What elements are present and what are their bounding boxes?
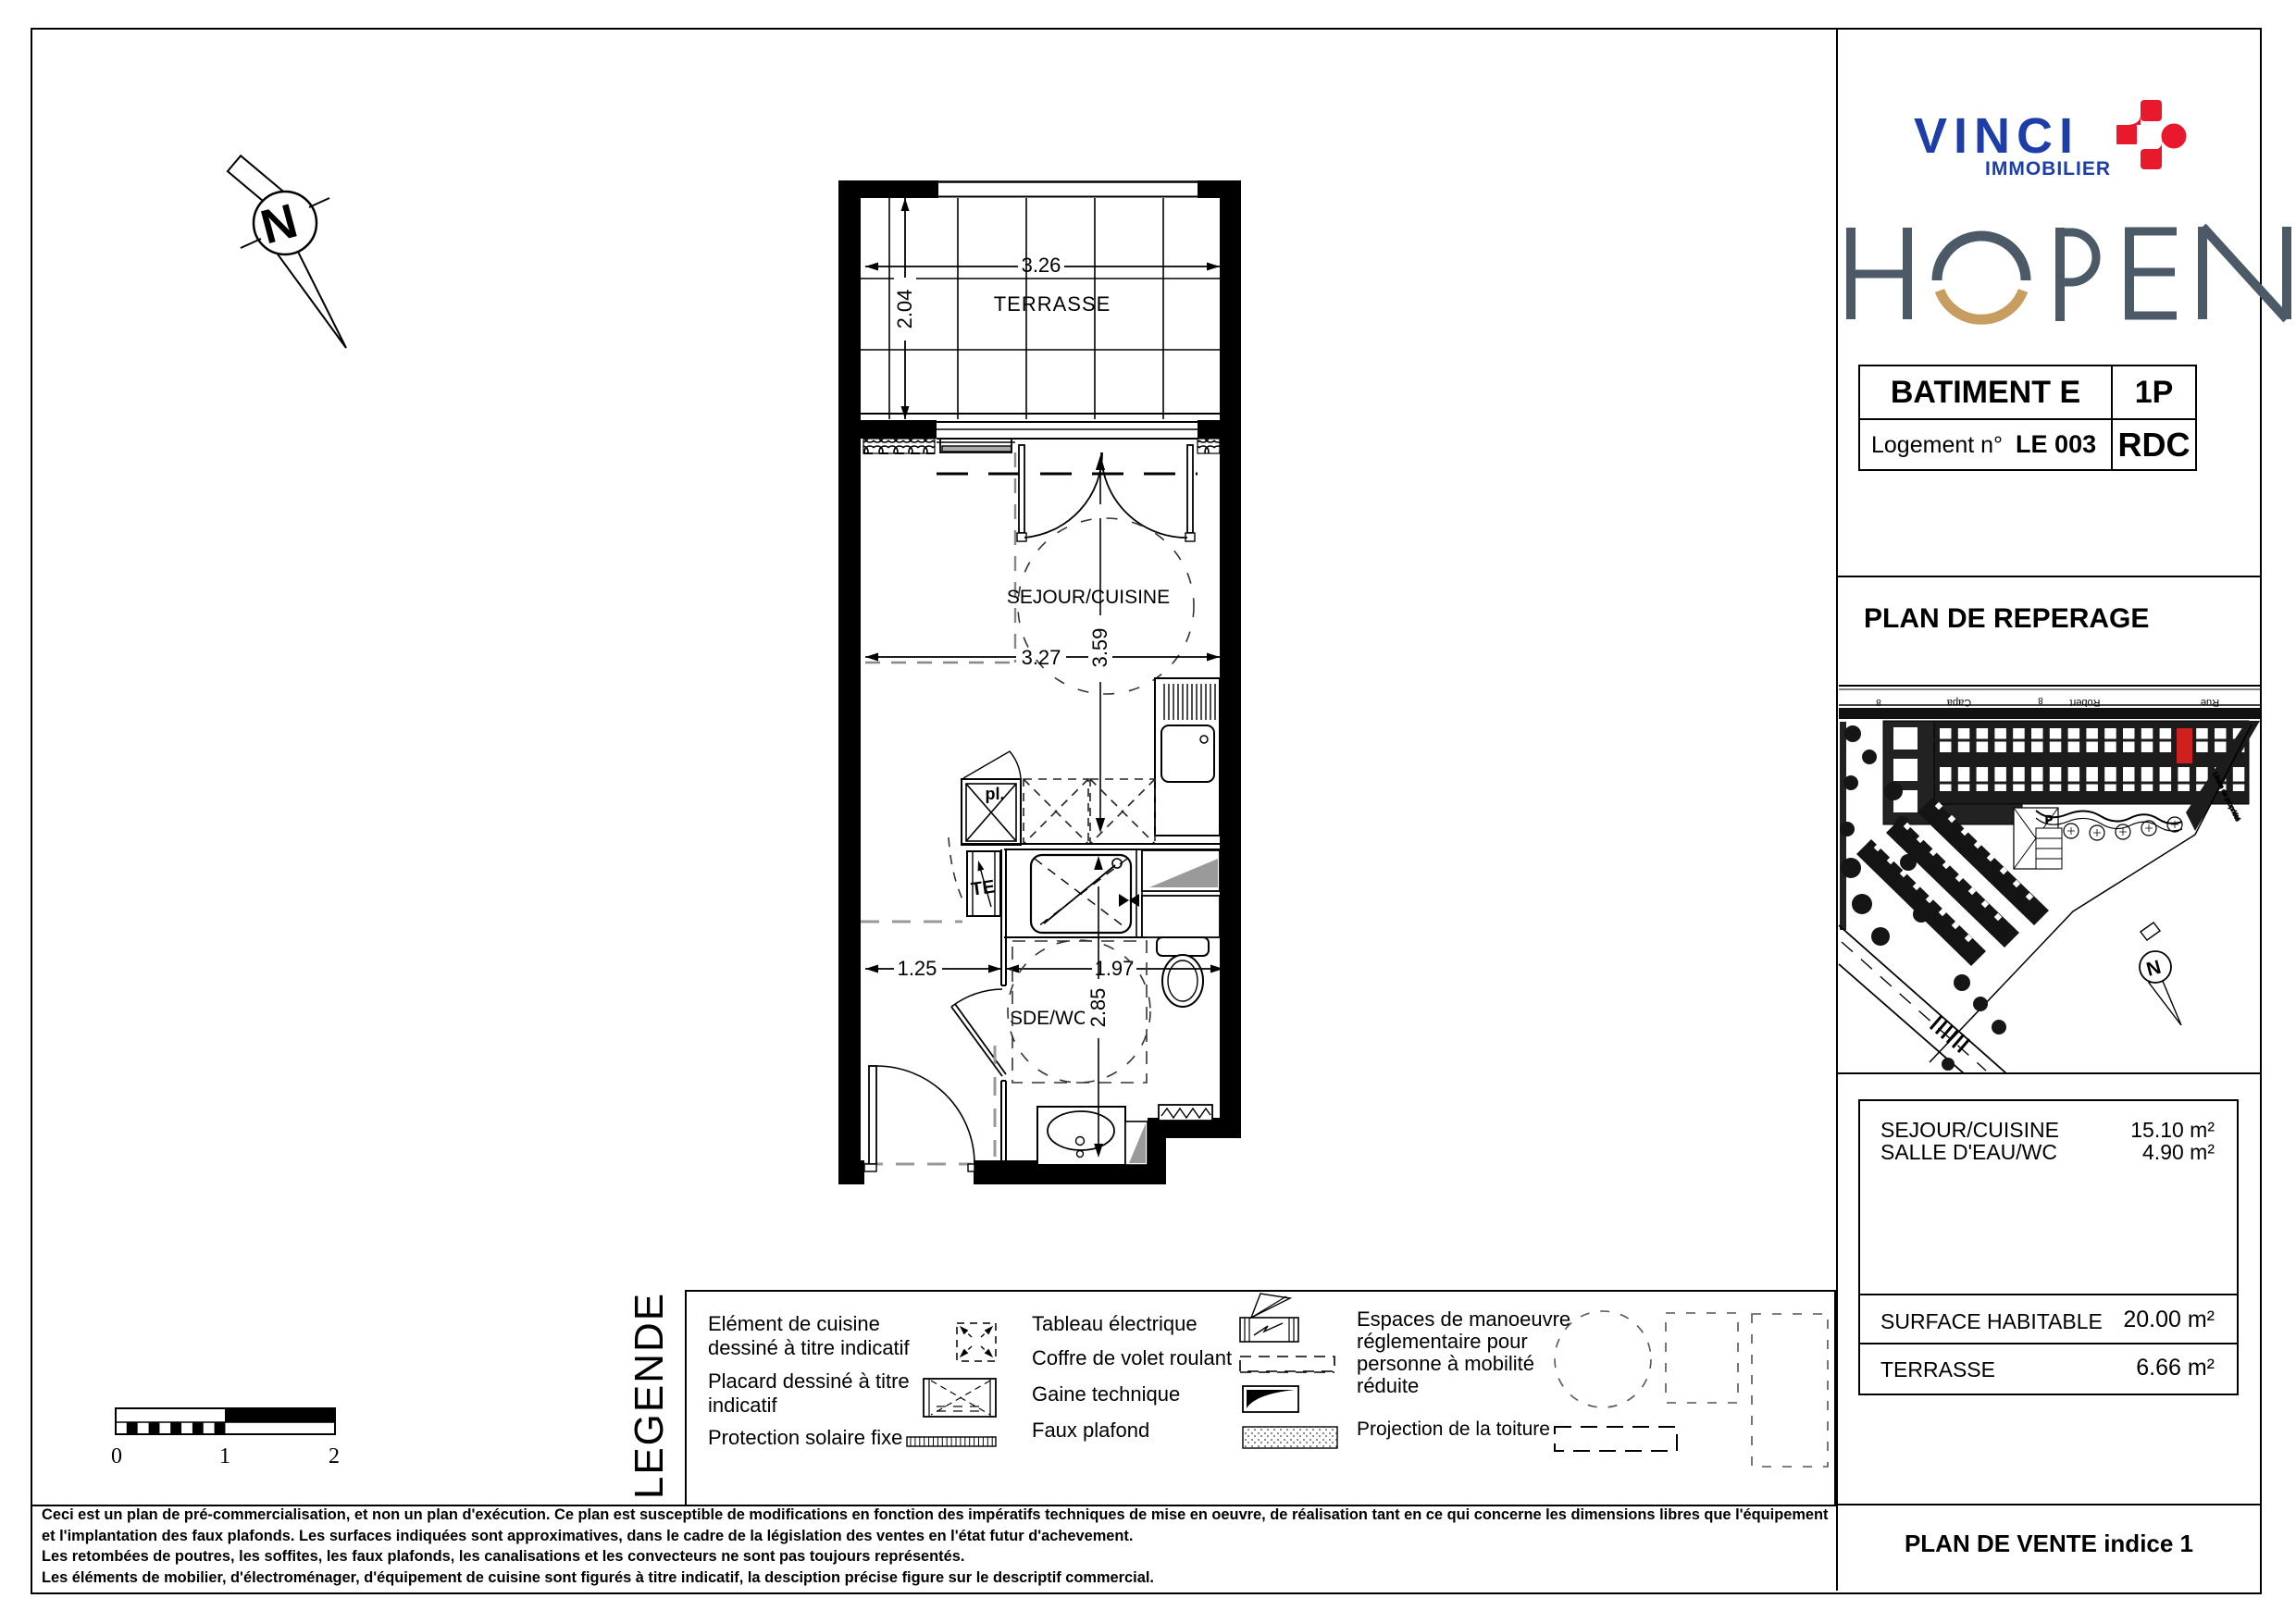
svg-text:SDE/WC: SDE/WC [1010, 1008, 1087, 1029]
svg-text:3.27: 3.27 [1022, 646, 1061, 669]
svg-text:8: 8 [2038, 695, 2043, 705]
svg-text:VINCI: VINCI [1914, 108, 2079, 164]
svg-text:Capa: Capa [1946, 697, 1971, 708]
svg-text:0: 0 [111, 1444, 122, 1468]
svg-text:2: 2 [329, 1444, 340, 1468]
svg-text:1: 1 [219, 1444, 230, 1468]
svg-text:pl.: pl. [986, 785, 1005, 803]
svg-text:2.04: 2.04 [893, 290, 916, 329]
svg-text:3.59: 3.59 [1088, 628, 1111, 668]
svg-text:PLAN DE REPERAGE: PLAN DE REPERAGE [1864, 603, 2149, 634]
svg-text:TERRASSE: TERRASSE [994, 292, 1111, 316]
svg-text:IMMOBILIER: IMMOBILIER [1985, 158, 2111, 180]
svg-text:Rue: Rue [2201, 697, 2219, 708]
svg-text:LEGENDE: LEGENDE [627, 1292, 672, 1499]
svg-text:SEJOUR/CUISINE: SEJOUR/CUISINE [1007, 587, 1170, 608]
svg-text:Robert: Robert [2069, 697, 2100, 708]
svg-text:2.85: 2.85 [1086, 988, 1110, 1028]
svg-text:1.25: 1.25 [898, 957, 937, 980]
svg-text:3.26: 3.26 [1022, 254, 1061, 277]
